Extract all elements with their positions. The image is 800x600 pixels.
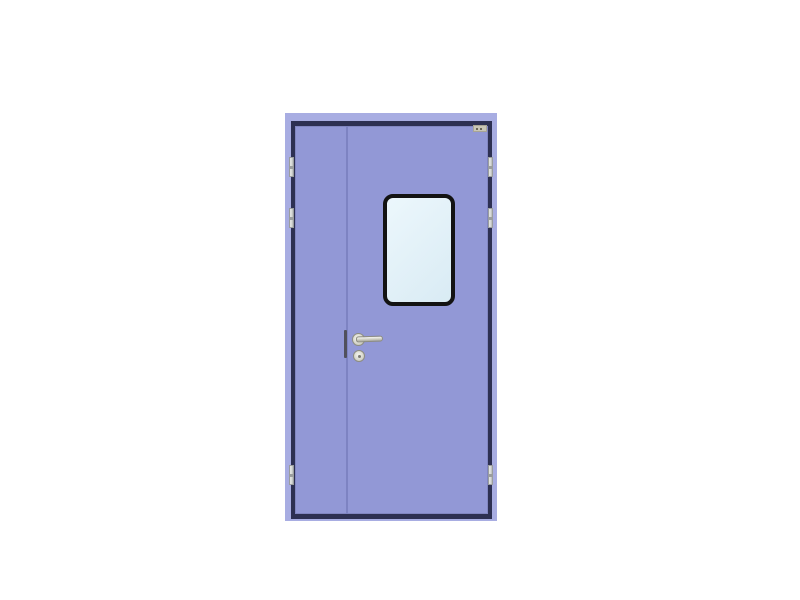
corner-tag (473, 125, 487, 132)
vision-window (383, 194, 455, 306)
edge-lock-strip (344, 330, 347, 358)
hinge-left-bottom (289, 465, 294, 485)
lever-handle (356, 336, 383, 343)
door-frame-inner-line (291, 121, 492, 519)
leaf-meeting-stile (346, 126, 348, 514)
hinge-left-top (289, 157, 294, 177)
hinge-right-top (488, 157, 493, 177)
hinge-right-middle (488, 208, 493, 228)
hinge-right-bottom (488, 465, 493, 485)
product-image (0, 0, 800, 600)
lock-cylinder (353, 350, 365, 362)
hinge-left-middle (289, 208, 294, 228)
door (285, 113, 497, 521)
